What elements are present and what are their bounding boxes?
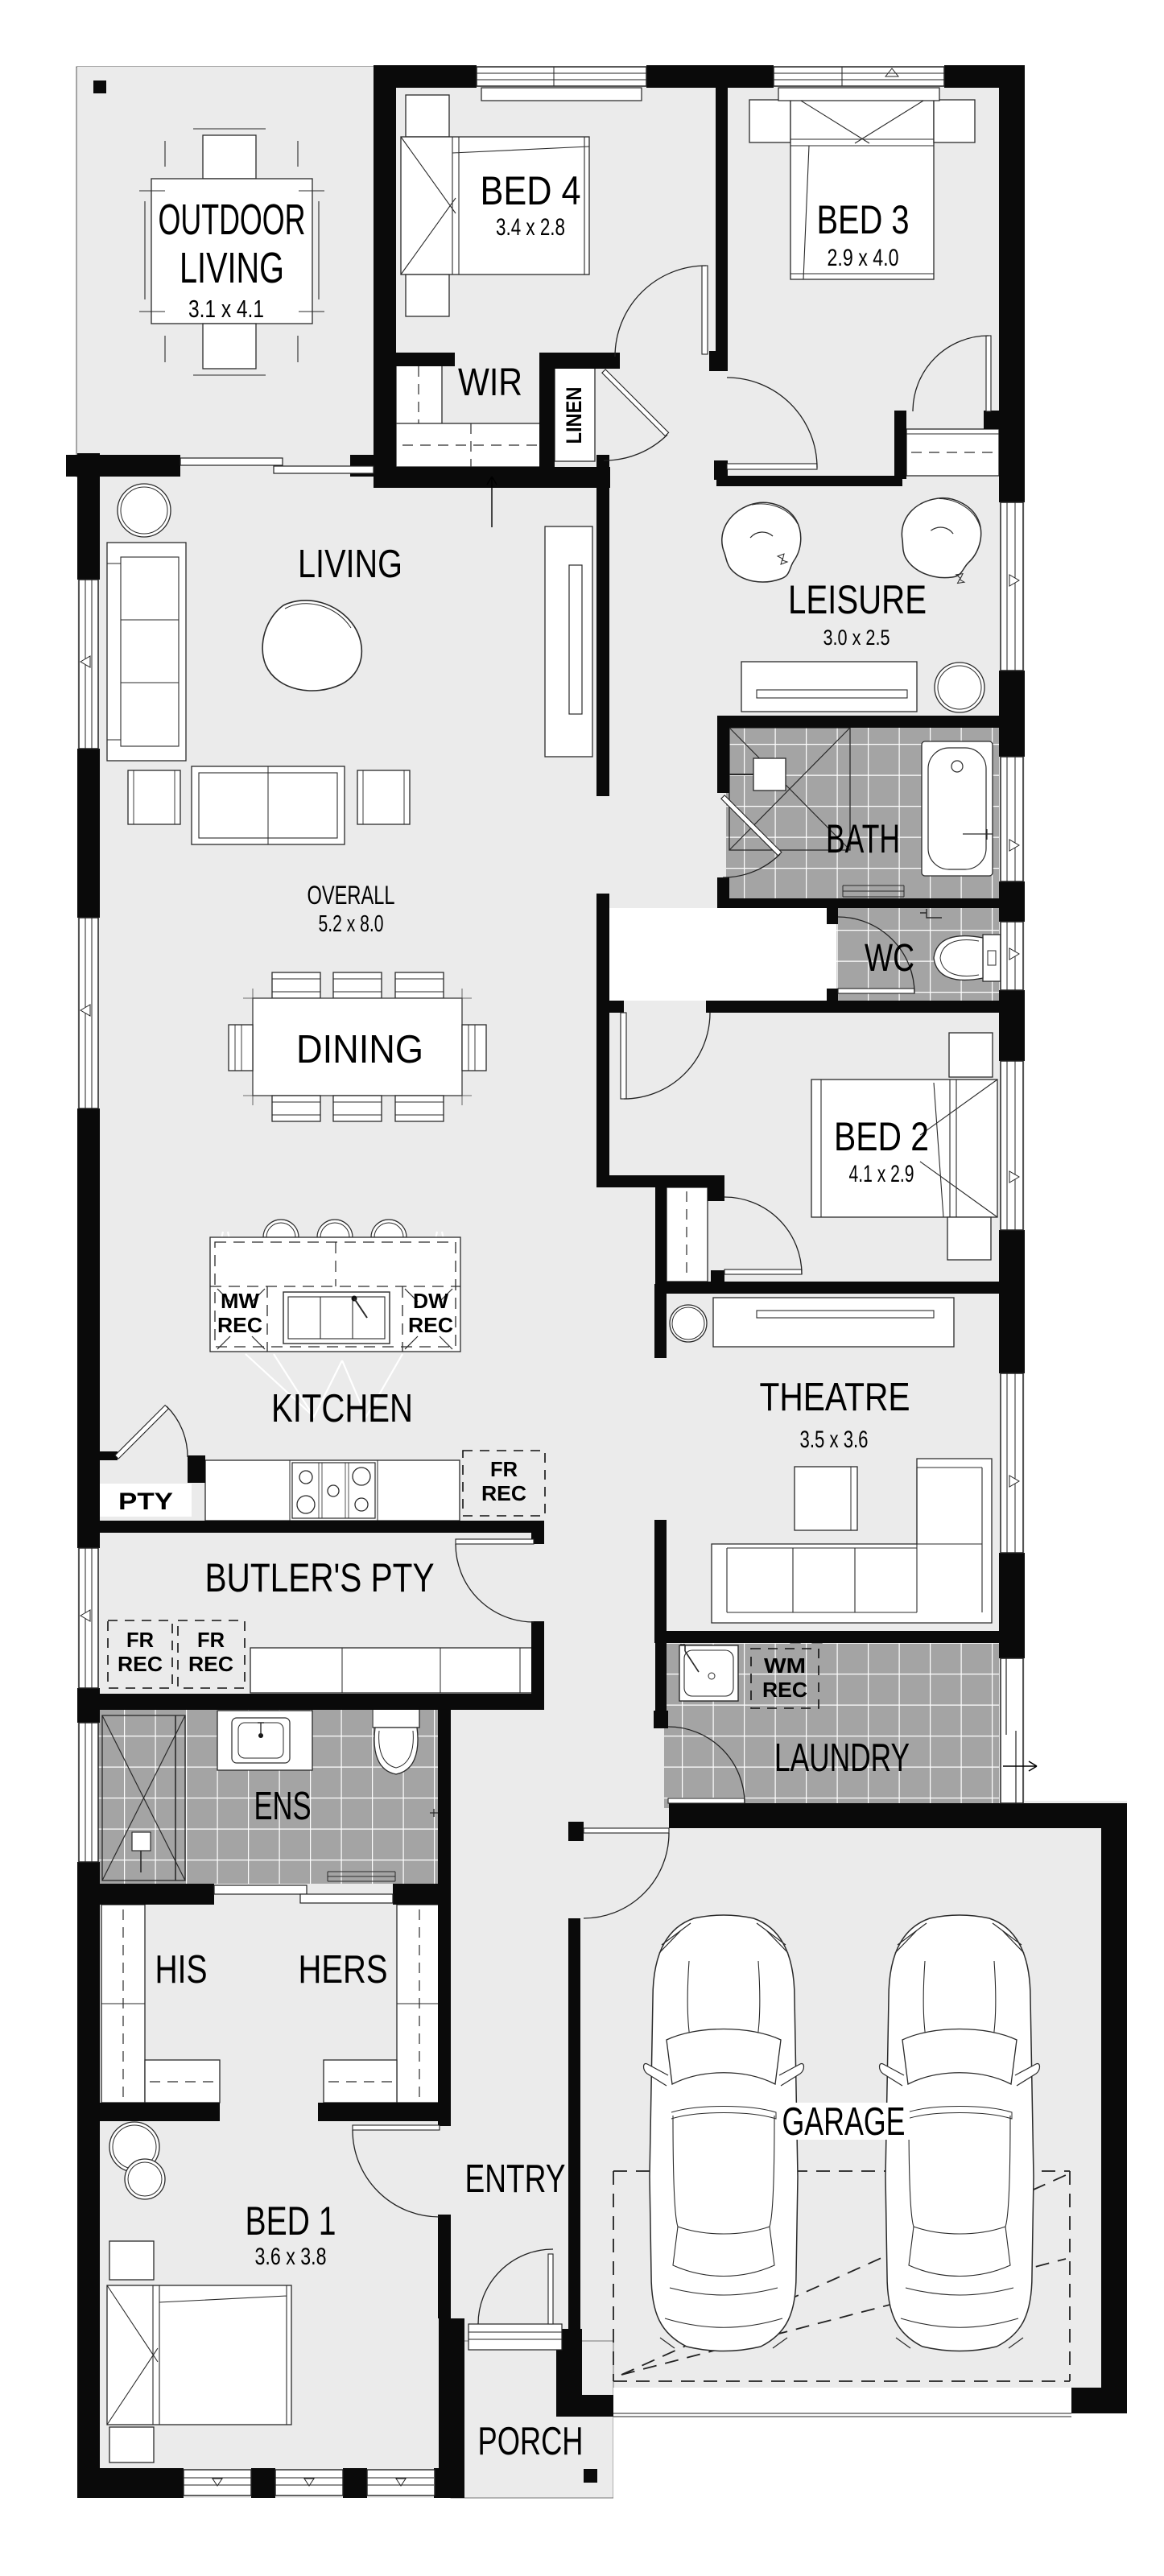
- svg-text:ENS: ENS: [254, 1785, 312, 1828]
- svg-text:BED 2: BED 2: [834, 1114, 929, 1159]
- svg-text:REC: REC: [118, 1652, 163, 1676]
- svg-text:HERS: HERS: [299, 1948, 388, 1992]
- svg-text:3.0 x 2.5: 3.0 x 2.5: [823, 625, 890, 650]
- svg-text:FR: FR: [490, 1457, 518, 1481]
- svg-text:REC: REC: [217, 1313, 262, 1337]
- svg-text:REC: REC: [762, 1678, 807, 1702]
- svg-text:OUTDOOR: OUTDOOR: [159, 196, 306, 244]
- svg-text:2.9 x 4.0: 2.9 x 4.0: [828, 245, 899, 271]
- svg-text:LEISURE: LEISURE: [788, 577, 927, 622]
- svg-text:LINEN: LINEN: [562, 387, 586, 444]
- svg-text:DW: DW: [413, 1289, 448, 1313]
- svg-text:REC: REC: [188, 1652, 233, 1676]
- svg-text:PTY: PTY: [118, 1488, 173, 1515]
- svg-text:5.2 x 8.0: 5.2 x 8.0: [319, 911, 384, 937]
- svg-text:KITCHEN: KITCHEN: [271, 1387, 413, 1430]
- svg-text:BATH: BATH: [826, 816, 900, 861]
- svg-text:REC: REC: [481, 1481, 526, 1505]
- svg-text:HIS: HIS: [155, 1948, 208, 1992]
- svg-text:LIVING: LIVING: [180, 244, 284, 292]
- svg-text:ENTRY: ENTRY: [465, 2157, 566, 2201]
- svg-text:WM: WM: [764, 1653, 806, 1678]
- svg-text:GARAGE: GARAGE: [782, 2100, 906, 2144]
- svg-text:3.4 x 2.8: 3.4 x 2.8: [496, 214, 565, 241]
- svg-text:3.5 x 3.6: 3.5 x 3.6: [800, 1426, 869, 1453]
- svg-text:LIVING: LIVING: [298, 543, 402, 586]
- svg-text:BED 4: BED 4: [481, 168, 581, 213]
- svg-text:3.1 x 4.1: 3.1 x 4.1: [188, 295, 264, 323]
- svg-text:FR: FR: [197, 1628, 225, 1652]
- svg-text:3.6 x 3.8: 3.6 x 3.8: [255, 2244, 327, 2270]
- svg-text:WC: WC: [865, 937, 914, 980]
- svg-text:THEATRE: THEATRE: [760, 1376, 910, 1419]
- svg-text:PORCH: PORCH: [478, 2420, 584, 2463]
- svg-text:DINING: DINING: [296, 1028, 423, 1071]
- svg-text:LAUNDRY: LAUNDRY: [774, 1736, 910, 1780]
- svg-text:BED 3: BED 3: [817, 197, 910, 242]
- svg-text:BED 1: BED 1: [246, 2198, 336, 2244]
- svg-text:BUTLER'S PTY: BUTLER'S PTY: [205, 1555, 435, 1600]
- svg-text:4.1 x 2.9: 4.1 x 2.9: [849, 1161, 914, 1187]
- svg-text:REC: REC: [408, 1313, 453, 1337]
- svg-text:WIR: WIR: [458, 361, 522, 404]
- svg-text:OVERALL: OVERALL: [308, 881, 395, 910]
- svg-text:MW: MW: [221, 1289, 259, 1313]
- svg-text:FR: FR: [126, 1628, 154, 1652]
